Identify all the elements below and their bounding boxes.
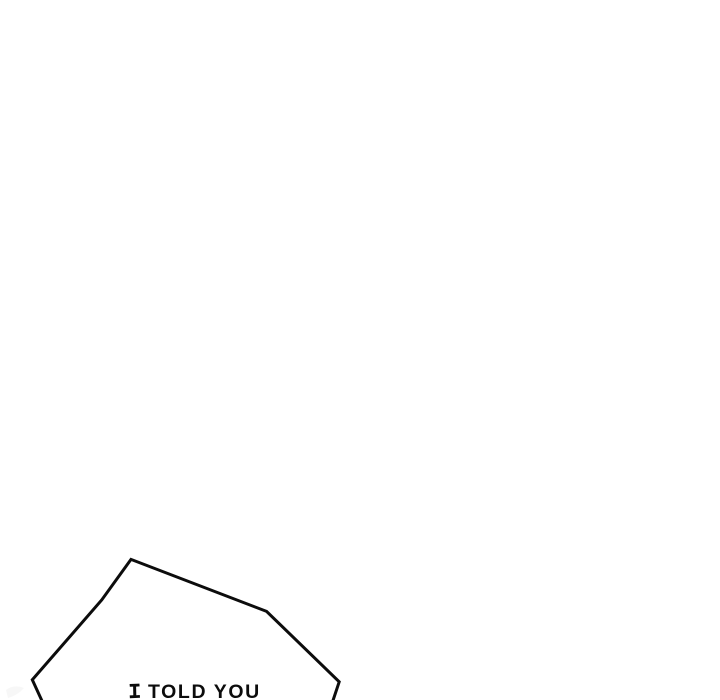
svg-text:TOLD YOU: TOLD YOU (148, 681, 261, 700)
